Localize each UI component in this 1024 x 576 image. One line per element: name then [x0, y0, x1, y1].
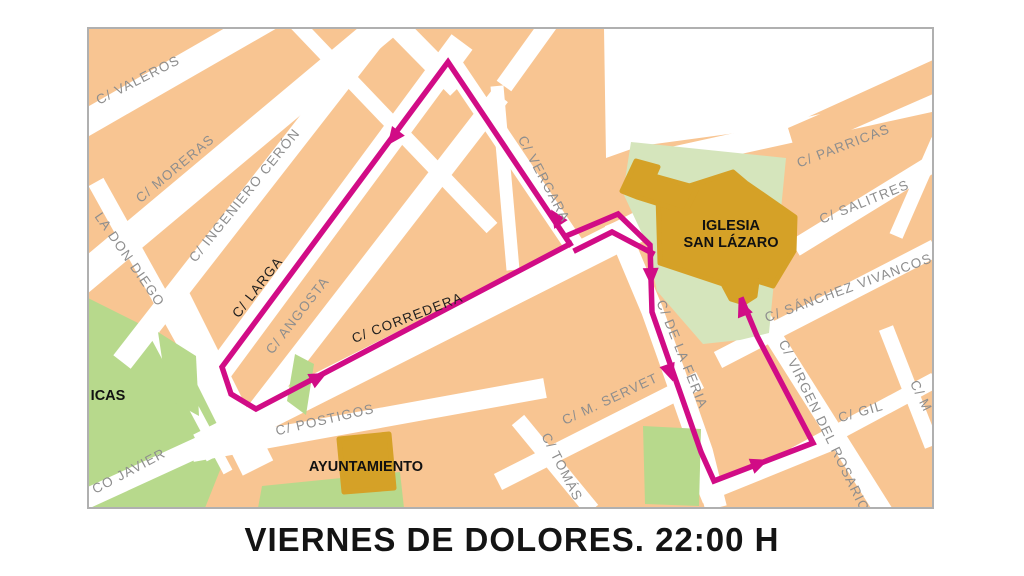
- green-bottom-strip-2: [643, 426, 701, 506]
- label-icas: ICAS: [91, 388, 126, 404]
- label-ayuntamiento: AYUNTAMIENTO: [309, 459, 423, 475]
- title-bar: VIERNES DE DOLORES. 22:00 H: [0, 521, 1024, 559]
- label-iglesia-line2: SAN LÁZARO: [683, 234, 778, 251]
- map-canvas: C/ VALEROSC/ MORERASC/ INGENIERO CERÓNLA…: [0, 0, 1024, 576]
- map-content: C/ VALEROSC/ MORERASC/ INGENIERO CERÓNLA…: [66, 14, 938, 515]
- page-title: VIERNES DE DOLORES. 22:00 H: [245, 521, 780, 558]
- label-iglesia-line1: IGLESIA: [702, 218, 761, 234]
- procession-map: C/ VALEROSC/ MORERASC/ INGENIERO CERÓNLA…: [0, 0, 1024, 576]
